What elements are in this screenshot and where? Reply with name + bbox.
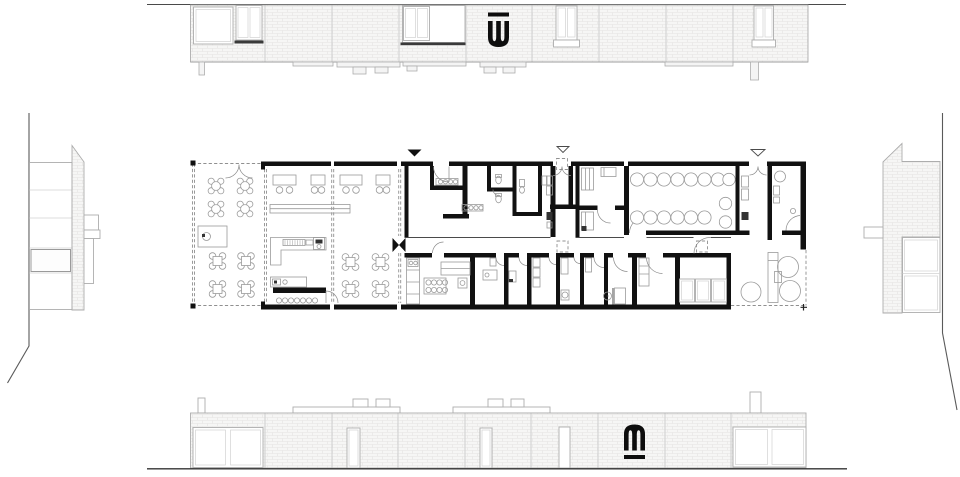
drawing-svg [0, 0, 960, 477]
right-elevation [864, 113, 957, 410]
entrance-markers [408, 147, 766, 157]
rear-projection [84, 215, 100, 284]
bar-back-wall [273, 288, 326, 294]
side-window [903, 238, 941, 313]
section-marker-filled [408, 150, 422, 157]
bottom-elevation [147, 392, 847, 469]
square-table-cluster [209, 281, 226, 298]
square-table-cluster [209, 253, 226, 270]
round-table-cluster [208, 201, 224, 217]
round-table-cluster [208, 178, 224, 194]
vestibule-and-cloakrooms [547, 168, 617, 232]
lounge-room [630, 173, 735, 228]
side-window [31, 250, 71, 272]
office-terrace-east [741, 253, 801, 303]
sideboard [270, 205, 350, 214]
dining-hall [270, 175, 390, 303]
window-tables [273, 175, 390, 193]
floor-plan [191, 147, 808, 311]
square-table-cluster [238, 281, 255, 298]
bar-counter [271, 238, 327, 266]
roof-elements [198, 392, 761, 413]
entrance-marker [751, 150, 765, 157]
footings [199, 62, 759, 80]
site-boundary-line [943, 113, 958, 410]
square-table-cluster [372, 281, 389, 298]
square-table-cluster [342, 254, 359, 271]
revolving-door-icon [393, 238, 406, 252]
buffet-counter [271, 277, 307, 287]
facade-brick [191, 413, 807, 468]
corner-post [191, 161, 196, 166]
rear-projection [864, 227, 883, 238]
entrance-marker [557, 147, 569, 153]
brick-gable-section [72, 146, 84, 311]
site-boundary-line [8, 113, 30, 383]
left-elevation [8, 113, 101, 383]
stove [424, 278, 448, 294]
terrace-west [198, 178, 254, 297]
square-table-cluster [372, 254, 389, 271]
square-table-cluster [238, 253, 255, 270]
facade-panels [30, 163, 73, 310]
column-marker [557, 241, 568, 252]
bar-stools [276, 298, 317, 303]
square-table-cluster [342, 281, 359, 298]
kitchen [407, 258, 471, 304]
round-table-cluster [237, 178, 253, 194]
architectural-drawing-sheet [0, 0, 960, 477]
sanitary-rooms [436, 175, 547, 212]
top-elevation [147, 5, 846, 81]
corner-post [191, 304, 196, 309]
planter [198, 226, 227, 247]
storage-glazing [680, 279, 727, 302]
round-table-cluster [237, 201, 253, 217]
